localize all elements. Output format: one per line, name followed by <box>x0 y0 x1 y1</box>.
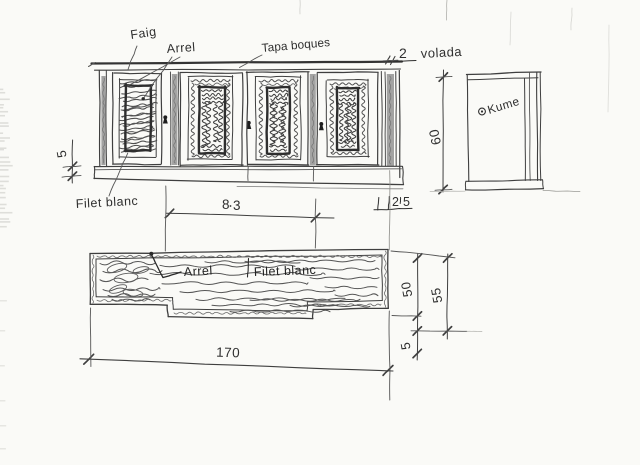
svg-text:55: 55 <box>428 286 445 304</box>
svg-text:50: 50 <box>398 280 415 298</box>
svg-text:3: 3 <box>233 198 241 213</box>
svg-text:2: 2 <box>392 195 399 209</box>
svg-text:2: 2 <box>399 45 407 61</box>
svg-text:Filet blanc: Filet blanc <box>254 263 317 279</box>
svg-text:Arrel: Arrel <box>183 264 213 279</box>
svg-text:8: 8 <box>222 197 230 212</box>
svg-text:170: 170 <box>216 345 241 361</box>
svg-text:5: 5 <box>403 195 410 209</box>
svg-text:volada: volada <box>420 44 462 61</box>
svg-text:Arrel: Arrel <box>166 40 196 56</box>
